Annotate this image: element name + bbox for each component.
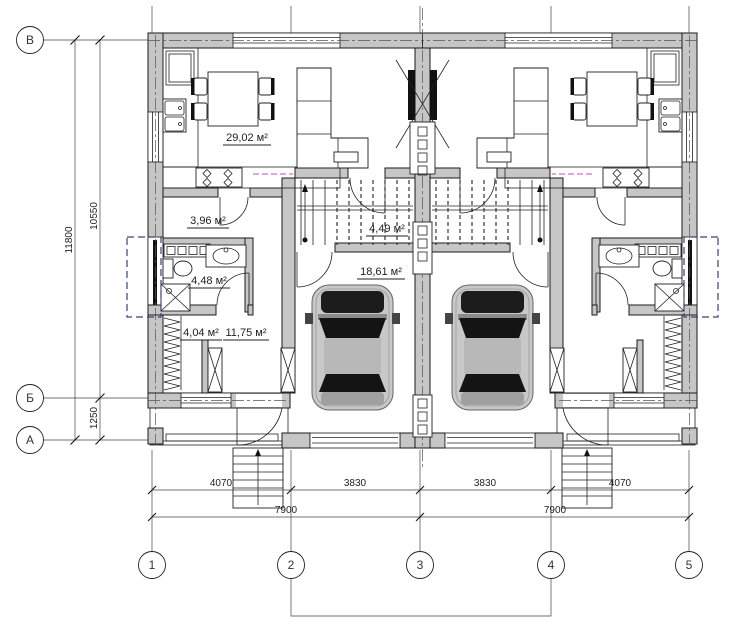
axis-label-a: А: [26, 433, 34, 447]
axis-label-3: 3: [417, 558, 424, 572]
dim-upper-vertical: 10550: [89, 202, 100, 230]
dim-seg3: 3830: [474, 478, 497, 489]
dim-seg2: 3830: [344, 478, 367, 489]
floor-plan-page: В Б А 1 2 3 4 5 11800 10550 1250 4070 38…: [0, 0, 729, 624]
dim-total-left: 7900: [275, 505, 298, 516]
party-wall-shaft: [396, 8, 449, 468]
dim-seg4: 4070: [609, 478, 632, 489]
area-bath: 4,48 м²: [191, 275, 227, 287]
area-garage: 18,61 м²: [360, 266, 402, 278]
axis-label-b: Б: [26, 391, 34, 405]
dim-lower-vertical: 1250: [89, 406, 100, 429]
area-room: 11,75 м²: [226, 327, 267, 339]
axis-label-2: 2: [288, 558, 295, 572]
dim-overall-vertical: 11800: [64, 226, 75, 254]
right-unit: [423, 33, 719, 508]
area-stair: 4,49 м²: [369, 223, 405, 235]
axis-label-4: 4: [548, 558, 555, 572]
dim-seg1: 4070: [210, 478, 233, 489]
axis-label-5: 5: [686, 558, 693, 572]
axis-label-1: 1: [149, 558, 156, 572]
dim-total-right: 7900: [544, 505, 567, 516]
floor-plan-drawing: В Б А 1 2 3 4 5 11800 10550 1250 4070 38…: [0, 0, 729, 624]
area-entry: 4,04 м²: [183, 327, 219, 339]
axis-label-v: В: [26, 33, 34, 47]
area-living: 29,02 м²: [226, 132, 268, 144]
area-hall: 3,96 м²: [190, 215, 226, 227]
